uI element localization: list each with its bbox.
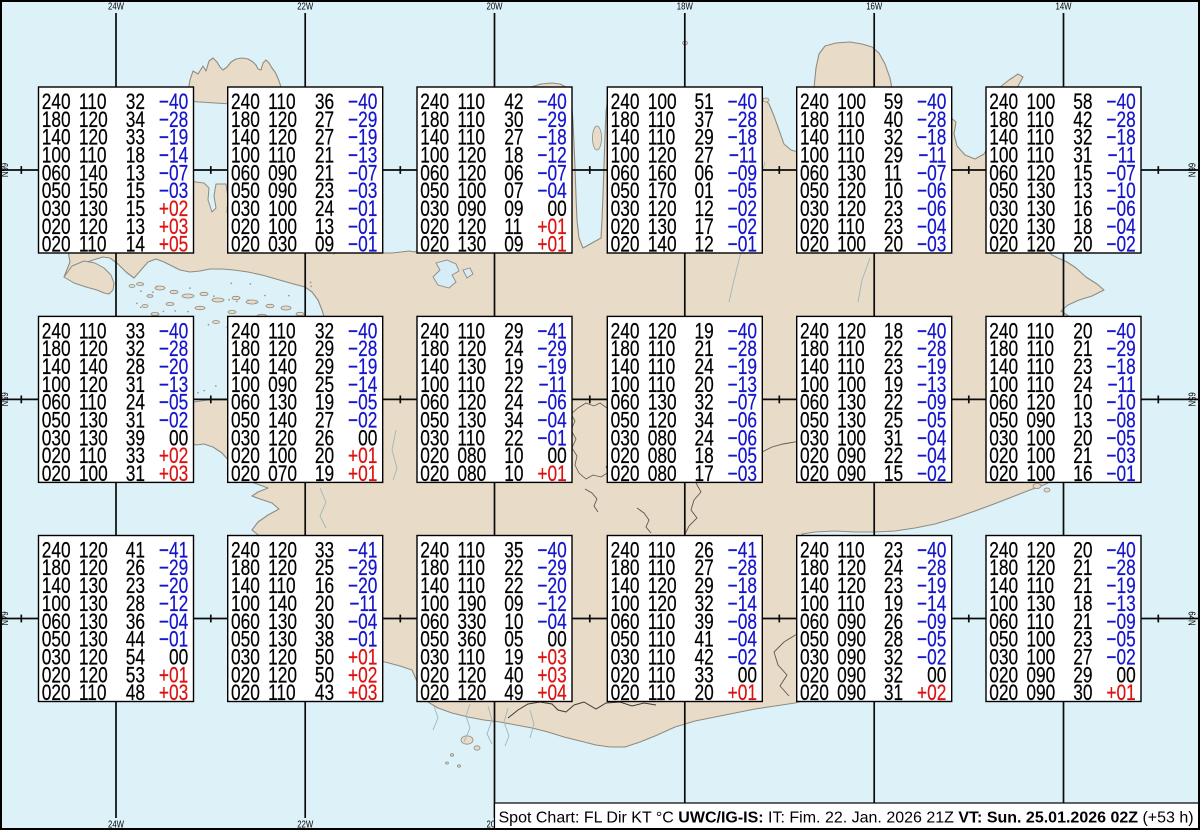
svg-text:100: 100: [837, 233, 866, 258]
svg-text:14: 14: [126, 233, 145, 258]
svg-text:+01: +01: [537, 462, 566, 487]
svg-text:49: 49: [504, 681, 523, 706]
svg-text:100: 100: [1026, 462, 1055, 487]
svg-text:16: 16: [1073, 462, 1092, 487]
svg-text:090: 090: [837, 462, 866, 487]
svg-text:20: 20: [695, 681, 714, 706]
svg-text:+02: +02: [917, 681, 946, 706]
svg-text:15: 15: [884, 462, 903, 487]
svg-text:130: 130: [457, 233, 486, 258]
svg-text:020: 020: [420, 681, 449, 706]
svg-text:65N: 65N: [1186, 392, 1197, 406]
svg-text:31: 31: [126, 462, 145, 487]
svg-text:22W: 22W: [297, 818, 313, 829]
svg-text:18W: 18W: [677, 1, 693, 12]
svg-text:140: 140: [648, 233, 677, 258]
svg-text:−02: −02: [1106, 233, 1135, 258]
svg-text:−01: −01: [728, 233, 757, 258]
svg-text:−03: −03: [917, 233, 946, 258]
svg-text:+03: +03: [159, 462, 188, 487]
svg-text:16W: 16W: [866, 1, 882, 12]
svg-text:+01: +01: [1106, 681, 1135, 706]
svg-text:Spot Chart: FL Dir KT °C UWC/I: Spot Chart: FL Dir KT °C UWC/IG-IS: IT: …: [499, 809, 1194, 826]
svg-text:43: 43: [315, 681, 334, 706]
svg-text:020: 020: [800, 462, 829, 487]
svg-text:030: 030: [268, 233, 297, 258]
svg-text:10: 10: [504, 462, 523, 487]
svg-text:020: 020: [800, 681, 829, 706]
svg-text:19: 19: [315, 462, 334, 487]
svg-text:080: 080: [457, 462, 486, 487]
svg-text:14W: 14W: [1055, 1, 1071, 12]
svg-text:110: 110: [79, 233, 107, 258]
svg-text:020: 020: [611, 681, 640, 706]
svg-text:020: 020: [420, 462, 449, 487]
svg-text:120: 120: [457, 681, 486, 706]
svg-text:48: 48: [126, 681, 145, 706]
svg-text:110: 110: [79, 681, 107, 706]
svg-text:020: 020: [42, 233, 71, 258]
svg-text:12: 12: [695, 233, 714, 258]
svg-text:020: 020: [989, 681, 1018, 706]
svg-text:31: 31: [884, 681, 903, 706]
svg-text:020: 020: [420, 233, 449, 258]
svg-text:090: 090: [1026, 681, 1055, 706]
svg-text:−01: −01: [348, 233, 377, 258]
svg-text:070: 070: [268, 462, 297, 487]
svg-text:20W: 20W: [486, 1, 502, 12]
svg-text:17: 17: [695, 462, 714, 487]
svg-text:110: 110: [268, 681, 296, 706]
svg-text:64N: 64N: [1186, 611, 1197, 625]
svg-text:+04: +04: [537, 681, 566, 706]
svg-text:120: 120: [1026, 233, 1055, 258]
svg-text:090: 090: [837, 681, 866, 706]
svg-text:+01: +01: [348, 462, 377, 487]
svg-text:+03: +03: [159, 681, 188, 706]
svg-text:24W: 24W: [108, 818, 124, 829]
svg-text:+01: +01: [728, 681, 757, 706]
svg-text:020: 020: [42, 681, 71, 706]
svg-text:020: 020: [42, 462, 71, 487]
svg-text:20: 20: [884, 233, 903, 258]
svg-text:22W: 22W: [297, 1, 313, 12]
svg-text:−02: −02: [917, 462, 946, 487]
svg-text:+03: +03: [348, 681, 377, 706]
svg-text:20: 20: [1073, 233, 1092, 258]
svg-text:+05: +05: [159, 233, 188, 258]
svg-text:30: 30: [1073, 681, 1092, 706]
svg-text:020: 020: [231, 462, 260, 487]
svg-text:020: 020: [989, 462, 1018, 487]
svg-text:020: 020: [800, 233, 829, 258]
svg-text:09: 09: [504, 233, 523, 258]
svg-text:020: 020: [989, 233, 1018, 258]
svg-text:080: 080: [648, 462, 677, 487]
svg-text:020: 020: [611, 233, 640, 258]
svg-text:020: 020: [231, 233, 260, 258]
svg-text:66N: 66N: [1186, 163, 1197, 177]
svg-text:−03: −03: [728, 462, 757, 487]
svg-text:020: 020: [231, 681, 260, 706]
svg-text:24W: 24W: [108, 1, 124, 12]
svg-text:110: 110: [648, 681, 676, 706]
svg-text:+01: +01: [537, 233, 566, 258]
svg-text:020: 020: [611, 462, 640, 487]
svg-text:100: 100: [79, 462, 108, 487]
svg-text:−01: −01: [1106, 462, 1135, 487]
svg-text:09: 09: [315, 233, 334, 258]
